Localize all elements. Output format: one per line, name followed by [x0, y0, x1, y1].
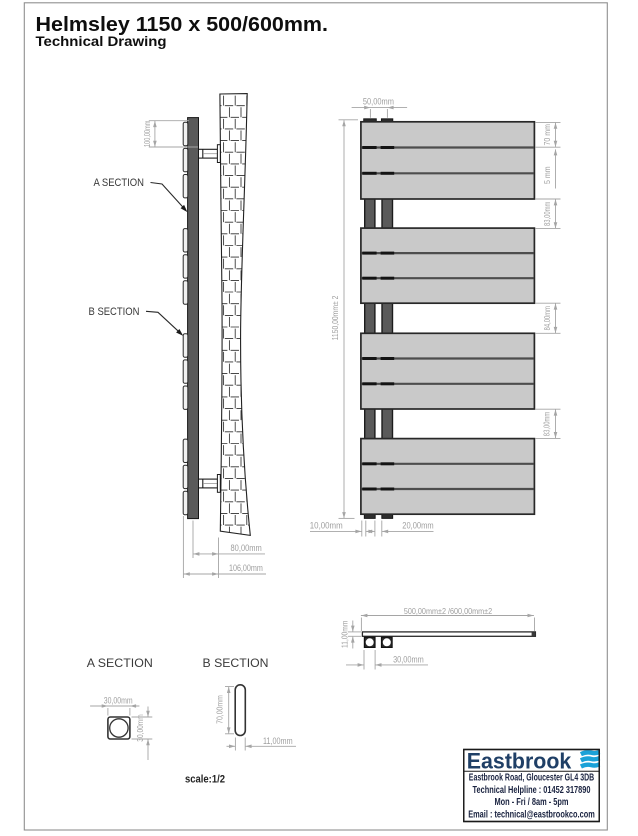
svg-text:80,00mm: 80,00mm: [231, 543, 262, 553]
svg-text:11,00mm: 11,00mm: [263, 736, 293, 746]
svg-text:11,00mm: 11,00mm: [340, 620, 349, 648]
svg-text:Mon - Fri / 8am - 5pm: Mon - Fri / 8am - 5pm: [495, 797, 569, 808]
svg-text:30,00mm: 30,00mm: [136, 714, 145, 742]
svg-text:A SECTION: A SECTION: [87, 656, 153, 670]
svg-text:scale:1/2: scale:1/2: [185, 774, 225, 786]
svg-text:B SECTION: B SECTION: [203, 656, 269, 670]
svg-text:70,00mm: 70,00mm: [215, 695, 224, 724]
svg-text:20,00mm: 20,00mm: [402, 520, 433, 530]
svg-text:Helmsley 1150 x 500/600mm.: Helmsley 1150 x 500/600mm.: [36, 13, 329, 36]
svg-text:Technical Drawing: Technical Drawing: [36, 34, 167, 49]
svg-text:70 mm: 70 mm: [543, 124, 552, 146]
svg-text:500,00mm±2 /600,00mm±2: 500,00mm±2 /600,00mm±2: [404, 606, 493, 616]
svg-text:Eastbrook Road, Gloucester GL4: Eastbrook Road, Gloucester GL4 3DB: [469, 773, 594, 784]
svg-text:30,00mm: 30,00mm: [104, 695, 133, 705]
svg-text:10,00mm: 10,00mm: [310, 520, 343, 530]
svg-text:Email : technical@eastbrookco.: Email : technical@eastbrookco.com: [468, 809, 595, 820]
svg-text:83,00mm: 83,00mm: [543, 201, 552, 226]
svg-text:106,00mm: 106,00mm: [229, 563, 263, 573]
svg-text:100,00mm: 100,00mm: [143, 120, 152, 147]
svg-text:B SECTION: B SECTION: [89, 306, 140, 318]
svg-text:Technical Helpline : 01452 317: Technical Helpline : 01452 317890: [473, 785, 591, 796]
svg-text:84,00mm: 84,00mm: [543, 306, 552, 331]
svg-text:30,00mm: 30,00mm: [393, 654, 424, 664]
svg-text:A SECTION: A SECTION: [94, 177, 145, 189]
svg-text:1150,00mm± 2: 1150,00mm± 2: [331, 295, 340, 340]
svg-text:5 mm: 5 mm: [543, 166, 552, 184]
svg-text:Eastbrook: Eastbrook: [467, 748, 572, 773]
svg-text:83,00mm: 83,00mm: [542, 412, 551, 437]
svg-text:50,00mm: 50,00mm: [363, 97, 394, 107]
